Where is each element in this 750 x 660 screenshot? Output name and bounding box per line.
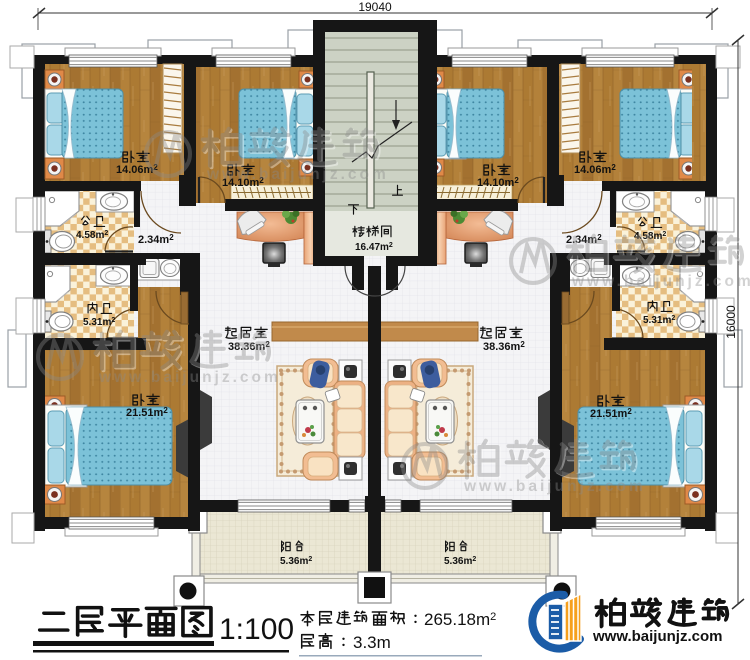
svg-text:14.10m2: 14.10m2 <box>477 176 519 189</box>
svg-text:5.31m2: 5.31m2 <box>83 317 115 328</box>
svg-text:www.baijunjz.com: www.baijunjz.com <box>98 369 281 386</box>
svg-text:16.47m2: 16.47m2 <box>355 242 393 253</box>
svg-text:www.baijunjz.com: www.baijunjz.com <box>571 273 750 290</box>
svg-text:5.31m2: 5.31m2 <box>643 315 675 326</box>
svg-text:4.58m2: 4.58m2 <box>76 230 108 241</box>
svg-text:19040: 19040 <box>358 0 392 14</box>
svg-text:5.36m2: 5.36m2 <box>280 556 312 567</box>
svg-text:14.06m2: 14.06m2 <box>574 163 616 176</box>
svg-text:www.baijunjz.com: www.baijunjz.com <box>206 166 389 183</box>
svg-text:21.51m2: 21.51m2 <box>126 406 168 419</box>
svg-text:1:100: 1:100 <box>219 613 294 646</box>
svg-text:38.36m2: 38.36m2 <box>483 340 525 353</box>
svg-text:3.3m: 3.3m <box>353 633 391 652</box>
svg-text:16000: 16000 <box>724 305 738 339</box>
svg-text:2.34m2: 2.34m2 <box>138 233 174 246</box>
svg-text:265.18m2: 265.18m2 <box>424 610 496 629</box>
svg-text:www.baijunjz.com: www.baijunjz.com <box>463 478 646 495</box>
svg-text:www.baijunjz.com: www.baijunjz.com <box>592 628 722 645</box>
svg-text:5.36m2: 5.36m2 <box>444 556 476 567</box>
svg-text:21.51m2: 21.51m2 <box>590 407 632 420</box>
